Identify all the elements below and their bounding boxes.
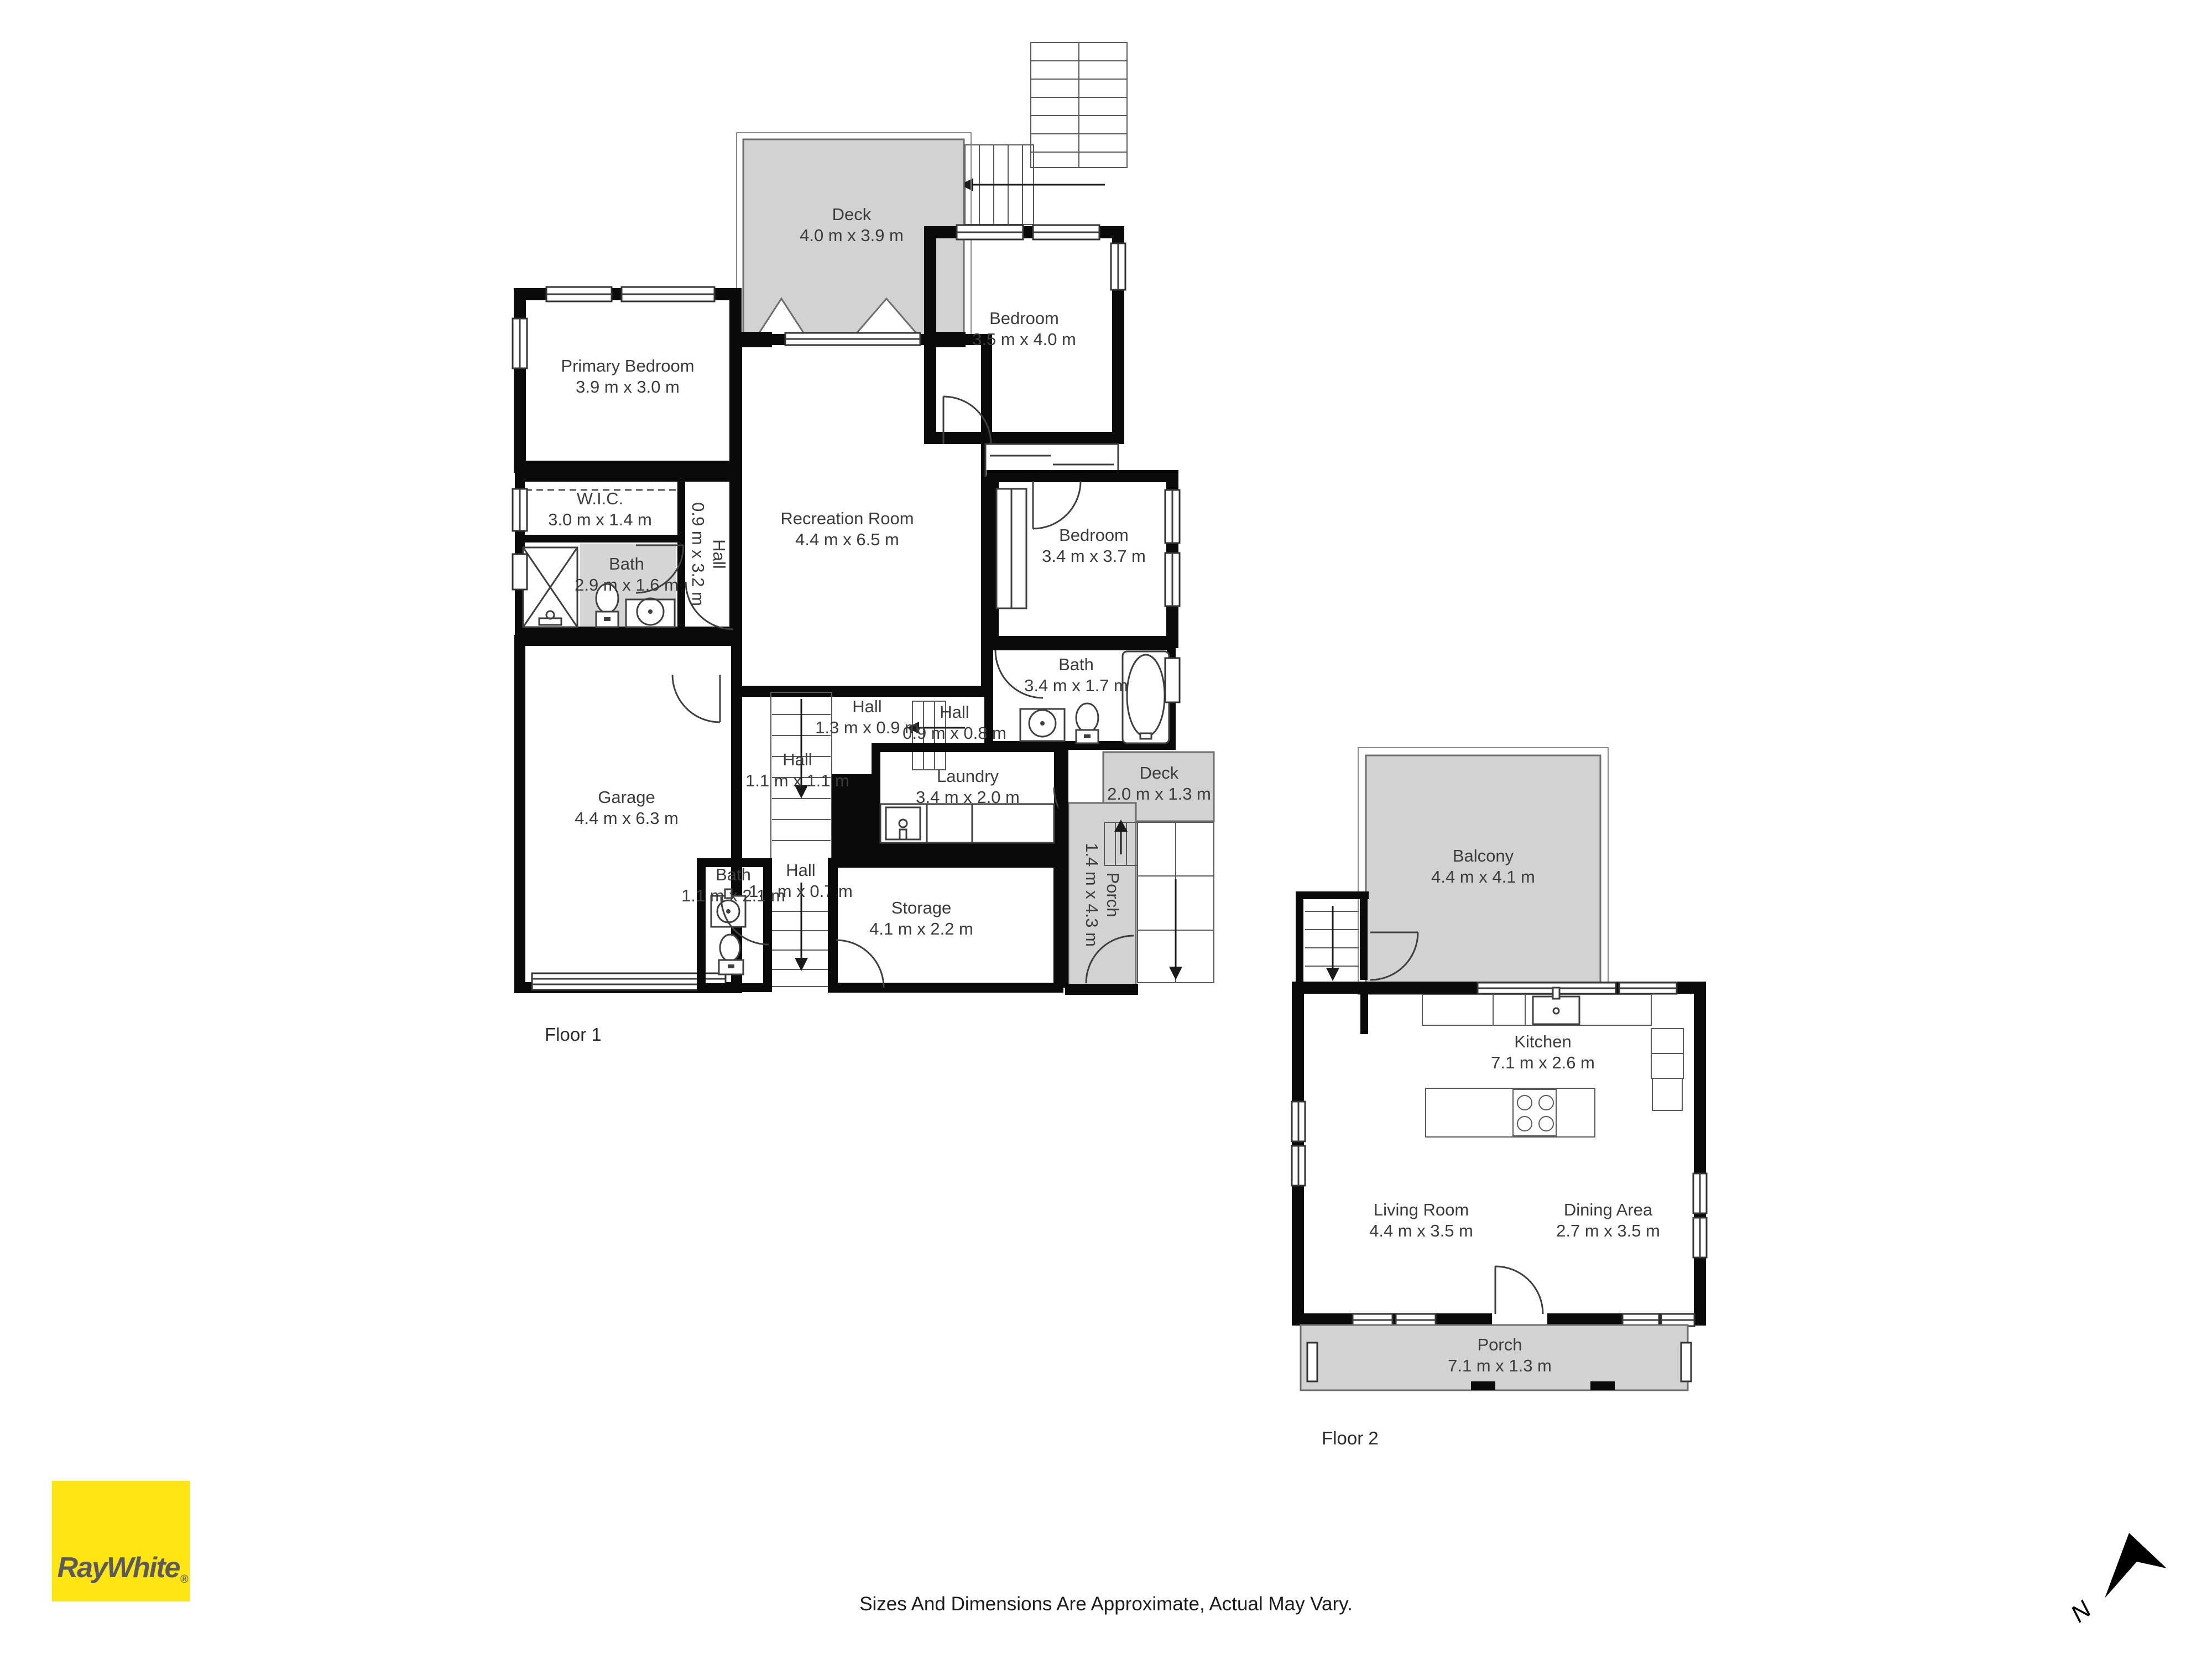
floor1-label: Floor 1 [545, 1024, 602, 1045]
room-dims: 4.4 m x 6.5 m [795, 530, 899, 549]
room-dims: 3.4 m x 2.0 m [916, 787, 1020, 807]
exterior-stairs-top-icon [960, 43, 1127, 225]
floor2-plan: Balcony 4.4 m x 4.1 m [1292, 748, 1707, 1448]
room-dims: 4.4 m x 4.1 m [1431, 867, 1535, 886]
registered-mark: ® [180, 1573, 189, 1585]
room-label: Bedroom [1059, 525, 1129, 545]
north-arrow-icon: N [2065, 1533, 2167, 1628]
room-label: Laundry [937, 766, 999, 786]
room-porch-front: Porch 7.1 m x 1.3 m [1301, 1325, 1691, 1390]
room-label: Balcony [1453, 846, 1514, 865]
room-label: Deck [832, 205, 872, 224]
room-dims: 3.9 m x 3.0 m [576, 377, 680, 397]
room-label: Living Room [1374, 1200, 1469, 1219]
room-balcony: Balcony 4.4 m x 4.1 m [1358, 748, 1608, 994]
floorplan-page: Deck 4.0 m x 3.9 m Recreation Room 4.4 m… [0, 0, 2212, 1659]
room-label: W.I.C. [577, 489, 623, 508]
room-label: Hall [786, 860, 815, 880]
room-bath-small: Bath 1.1 m x 2.1 m [681, 863, 785, 988]
room-label: Hall [940, 702, 969, 722]
room-label: Porch [1103, 873, 1123, 917]
room-label: Recreation Room [780, 509, 914, 528]
disclaimer-text: Sizes And Dimensions Are Approximate, Ac… [859, 1593, 1353, 1615]
room-primary-bedroom: Primary Bedroom 3.9 m x 3.0 m [513, 287, 735, 467]
room-dims: 2.9 m x 1.6 m [575, 575, 679, 594]
room-dims: 0.9 m x 0.8 m [902, 723, 1006, 743]
room-dims: 0.9 m x 3.2 m [688, 502, 708, 606]
room-dims: 3.4 m x 3.7 m [1042, 546, 1146, 566]
room-dims: 7.1 m x 1.3 m [1448, 1356, 1552, 1375]
floorplan-drawing: Deck 4.0 m x 3.9 m Recreation Room 4.4 m… [0, 0, 2212, 1659]
room-dims: 4.4 m x 6.3 m [575, 808, 679, 828]
room-label: Bath [1058, 655, 1094, 674]
room-label: Dining Area [1564, 1200, 1653, 1219]
room-dims: 4.4 m x 3.5 m [1369, 1221, 1473, 1240]
room-dims: 4.1 m x 2.2 m [869, 919, 973, 938]
room-dims: 2.0 m x 1.3 m [1107, 784, 1211, 804]
room-bedroom-2: Bedroom 3.4 m x 3.7 m [993, 476, 1180, 642]
floor1-plan: Deck 4.0 m x 3.9 m Recreation Room 4.4 m… [513, 43, 1214, 1045]
room-dims: 7.1 m x 2.6 m [1491, 1053, 1595, 1072]
kitchen-island-icon [1426, 1088, 1595, 1137]
room-dims: 3.4 m x 1.7 m [1024, 676, 1128, 695]
room-label: Primary Bedroom [561, 356, 694, 375]
floor2-main: Kitchen 7.1 m x 2.6 m Living Room 4.4 m … [1292, 983, 1707, 1326]
north-label: N [2065, 1595, 2096, 1627]
room-dims: 4.0 m x 3.9 m [800, 226, 904, 245]
room-label: Bath [716, 865, 751, 884]
brand-logo-text: RayWhite [58, 1552, 180, 1584]
room-label: Bath [609, 554, 644, 573]
room-label: Deck [1140, 763, 1179, 782]
room-label: Hall [782, 750, 812, 769]
room-dims: 1.1 m x 2.1 m [681, 886, 785, 905]
room-dims: 2.7 m x 3.5 m [1556, 1221, 1660, 1240]
room-recreation: Recreation Room 4.4 m x 6.5 m [737, 333, 987, 691]
room-bath-primary: Bath 2.9 m x 1.6 m [513, 544, 684, 627]
floor2-label: Floor 2 [1322, 1428, 1379, 1448]
room-label: Kitchen [1514, 1032, 1571, 1051]
room-label: Hall [852, 697, 881, 716]
room-dims: 1.4 m x 4.3 m [1082, 843, 1102, 947]
room-dims: 3.0 m x 1.4 m [548, 510, 652, 529]
room-hall-11: Hall 1.1 m x 1.1 m [745, 750, 849, 790]
room-label: Hall [709, 539, 729, 568]
brand-logo: RayWhite ® [52, 1481, 190, 1601]
room-hall-vertical: Hall 0.9 m x 3.2 m [686, 502, 733, 629]
room-dims: 3.5 m x 4.0 m [972, 330, 1076, 349]
room-label: Porch [1478, 1335, 1522, 1354]
room-label: Storage [891, 898, 952, 917]
room-bath-shared: Bath 3.4 m x 1.7 m [989, 646, 1180, 745]
room-storage: Storage 4.1 m x 2.2 m [833, 863, 1058, 988]
room-label: Bedroom [989, 309, 1059, 328]
room-label: Garage [598, 787, 655, 807]
room-dims: 1.1 m x 1.1 m [745, 771, 849, 790]
